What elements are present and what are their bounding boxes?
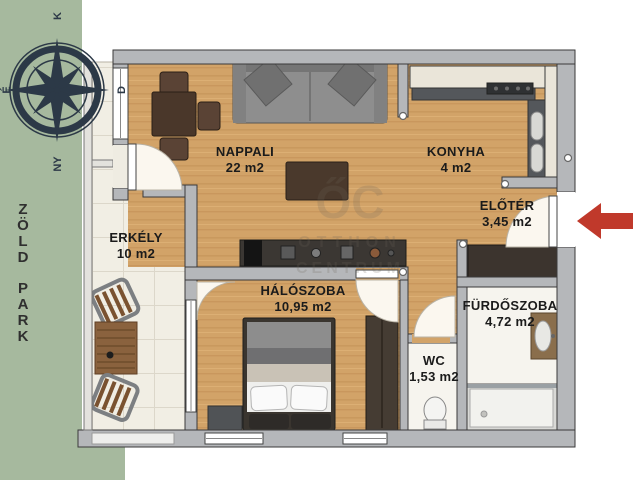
balcony-door-leaf [128, 144, 136, 190]
compass-north-label: É [0, 86, 13, 93]
bedroom-door-leaf [356, 270, 398, 278]
bed [243, 318, 335, 430]
park-label: Z Ö L D P A R K [12, 202, 34, 345]
coffee-table [286, 162, 348, 200]
room-label-konyha: KONYHA 4 m2 [427, 144, 485, 176]
shower [466, 384, 557, 430]
park-letter: A [12, 297, 34, 313]
room-area: 1,53 m2 [409, 369, 459, 385]
room-name: HÁLÓSZOBA [260, 283, 345, 299]
room-name: ELŐTÉR [480, 198, 535, 214]
kitchen-sink [531, 112, 543, 140]
room-label-haloszoba: HÁLÓSZOBA 10,95 m2 [260, 283, 345, 315]
floor-plan-drawing: K D NY É [0, 0, 640, 480]
compass-west-label: NY [52, 156, 64, 172]
park-letter: R [12, 313, 34, 329]
park-letter: D [12, 250, 34, 266]
toilet [424, 397, 446, 429]
park-letter: K [12, 329, 34, 345]
park-letter: L [12, 234, 34, 250]
park-letter: Z [12, 202, 34, 218]
room-area: 10 m2 [109, 246, 162, 262]
wardrobe [366, 316, 398, 430]
room-name: NAPPALI [216, 144, 274, 160]
room-label-erkely: ERKÉLY 10 m2 [109, 230, 162, 262]
room-name: ERKÉLY [109, 230, 162, 246]
park-letter: Ö [12, 218, 34, 234]
room-area: 4,72 m2 [463, 314, 558, 330]
park-letter: P [12, 281, 34, 297]
room-name: KONYHA [427, 144, 485, 160]
nightstand [208, 406, 242, 430]
pillow [290, 385, 327, 411]
balcony-furniture [90, 278, 140, 422]
pillow [250, 385, 287, 411]
room-label-nappali: NAPPALI 22 m2 [216, 144, 274, 176]
room-label-eloter: ELŐTÉR 3,45 m2 [480, 198, 535, 230]
sideboard [240, 240, 406, 266]
room-area: 3,45 m2 [480, 214, 535, 230]
room-area: 22 m2 [216, 160, 274, 176]
compass-east-label: K [52, 12, 64, 20]
room-area: 10,95 m2 [260, 299, 345, 315]
room-label-wc: WC 1,53 m2 [409, 353, 459, 385]
balcony-table [95, 322, 137, 374]
room-name: FÜRDŐSZOBA [463, 298, 558, 314]
hall-cabinet [468, 245, 562, 277]
entrance-door-leaf [549, 196, 557, 247]
sofa [233, 58, 387, 123]
compass-south-label: D [116, 86, 128, 94]
kitchen-tall-cabinet [545, 66, 557, 180]
room-label-furdoszoba: FÜRDŐSZOBA 4,72 m2 [463, 298, 558, 330]
floor-plan-page: K D NY É ŐC OTTHON CENTRUM Z Ö L D P A R… [0, 0, 640, 480]
room-area: 4 m2 [427, 160, 485, 176]
room-name: WC [409, 353, 459, 369]
